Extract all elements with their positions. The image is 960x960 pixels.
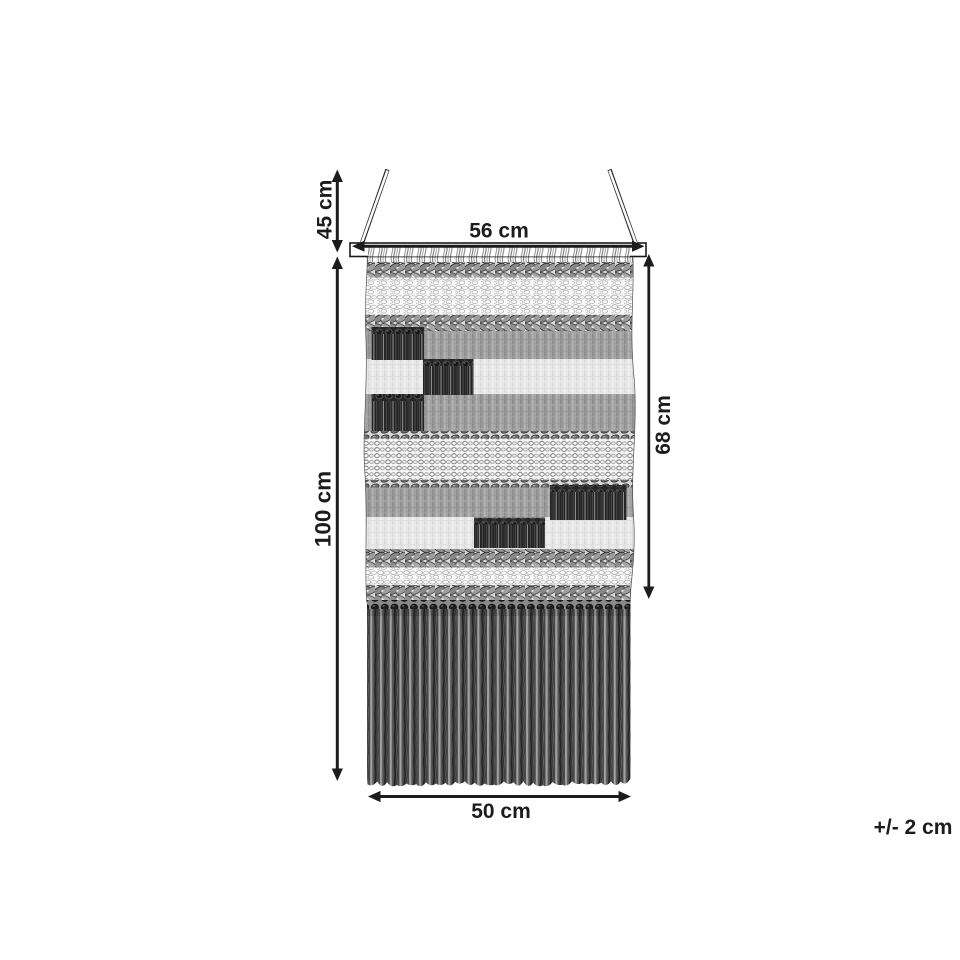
svg-text:50 cm: 50 cm [471, 800, 531, 823]
svg-text:56 cm: 56 cm [469, 220, 529, 243]
svg-text:68 cm: 68 cm [652, 395, 675, 455]
svg-text:45 cm: 45 cm [314, 180, 337, 240]
svg-text:100 cm: 100 cm [311, 471, 336, 547]
svg-text:+/- 2 cm: +/- 2 cm [874, 816, 953, 839]
